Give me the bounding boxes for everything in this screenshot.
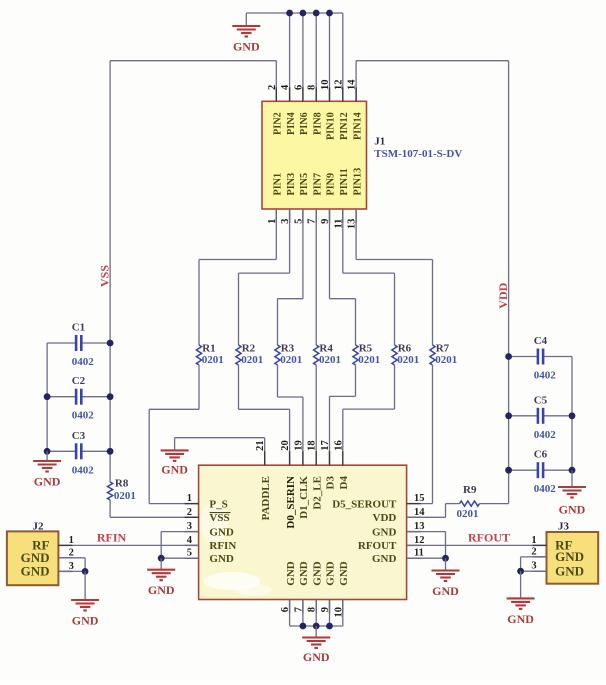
svg-text:J3: J3 (558, 521, 570, 533)
svg-text:20: 20 (280, 440, 291, 451)
svg-text:0402: 0402 (534, 429, 557, 441)
svg-text:GND: GND (209, 526, 234, 538)
svg-text:RFIN: RFIN (97, 531, 127, 545)
svg-text:D4: D4 (338, 476, 350, 490)
svg-text:0201: 0201 (280, 354, 302, 366)
svg-text:C4: C4 (534, 335, 548, 347)
svg-text:R5: R5 (359, 343, 373, 355)
svg-text:0201: 0201 (241, 354, 263, 366)
svg-text:C5: C5 (534, 394, 548, 406)
svg-text:PIN5: PIN5 (299, 173, 310, 196)
svg-text:PADDLE: PADDLE (260, 476, 272, 520)
svg-text:D2_LE: D2_LE (311, 476, 323, 510)
svg-text:GND: GND (285, 561, 297, 586)
svg-text:TSM-107-01-S-DV: TSM-107-01-S-DV (374, 148, 462, 160)
svg-text:GND: GND (148, 583, 175, 597)
svg-text:D0_SERIN: D0_SERIN (285, 476, 297, 529)
svg-text:0402: 0402 (72, 464, 95, 476)
svg-text:17: 17 (320, 440, 331, 451)
svg-text:1: 1 (69, 535, 74, 546)
svg-text:2: 2 (69, 547, 74, 558)
svg-text:GND: GND (311, 561, 323, 586)
svg-text:2: 2 (187, 507, 192, 518)
svg-text:VDD: VDD (373, 512, 397, 524)
svg-text:R4: R4 (319, 343, 333, 355)
svg-text:PIN4: PIN4 (286, 112, 297, 135)
svg-text:PIN1: PIN1 (273, 173, 284, 196)
svg-text:RFOUT: RFOUT (358, 540, 397, 552)
svg-text:3: 3 (531, 561, 536, 572)
svg-text:14: 14 (414, 507, 425, 518)
svg-text:R9: R9 (463, 484, 477, 496)
svg-text:0201: 0201 (358, 354, 380, 366)
svg-text:0402: 0402 (72, 356, 95, 368)
svg-text:PIN11: PIN11 (339, 168, 350, 195)
svg-text:GND: GND (559, 503, 586, 517)
svg-text:GND: GND (555, 549, 584, 564)
svg-text:PIN13: PIN13 (352, 168, 363, 196)
svg-text:GND: GND (325, 561, 337, 586)
svg-text:R2: R2 (242, 343, 256, 355)
svg-text:0201: 0201 (397, 354, 419, 366)
svg-text:13: 13 (414, 521, 425, 532)
svg-text:PIN3: PIN3 (286, 173, 297, 196)
svg-text:0402: 0402 (534, 483, 557, 495)
svg-text:PIN9: PIN9 (326, 173, 337, 196)
svg-text:C2: C2 (72, 375, 86, 387)
svg-text:18: 18 (307, 440, 318, 451)
svg-text:GND: GND (21, 564, 50, 579)
svg-text:R7: R7 (436, 343, 450, 355)
svg-text:GND: GND (161, 462, 188, 476)
svg-text:VDD: VDD (496, 282, 510, 308)
svg-text:R3: R3 (281, 343, 295, 355)
svg-text:R6: R6 (398, 343, 412, 355)
svg-text:D3: D3 (325, 476, 337, 490)
svg-text:1: 1 (531, 535, 536, 546)
svg-text:GND: GND (507, 612, 534, 626)
svg-text:GND: GND (372, 553, 397, 565)
svg-text:0201: 0201 (435, 354, 457, 366)
svg-text:PIN8: PIN8 (312, 112, 323, 135)
svg-text:RFOUT: RFOUT (468, 530, 510, 544)
svg-text:GND: GND (298, 561, 310, 586)
svg-text:PIN10: PIN10 (326, 112, 337, 140)
svg-text:GND: GND (209, 553, 234, 565)
svg-text:J1: J1 (374, 135, 385, 147)
svg-text:GND: GND (34, 475, 61, 489)
svg-text:0201: 0201 (319, 354, 341, 366)
svg-text:5: 5 (187, 548, 192, 559)
svg-text:0201: 0201 (457, 508, 479, 520)
svg-text:15: 15 (414, 493, 425, 504)
svg-text:19: 19 (293, 440, 304, 451)
svg-text:GND: GND (72, 614, 99, 628)
svg-text:R8: R8 (115, 478, 129, 490)
svg-text:12: 12 (414, 535, 425, 546)
svg-text:RFIN: RFIN (209, 540, 236, 552)
svg-text:GND: GND (233, 40, 260, 54)
svg-text:0402: 0402 (72, 410, 95, 422)
svg-text:VSS: VSS (97, 265, 111, 287)
svg-text:C6: C6 (534, 449, 548, 461)
svg-text:PIN2: PIN2 (273, 112, 284, 135)
svg-text:PIN6: PIN6 (299, 112, 310, 135)
svg-text:D5_SEROUT: D5_SEROUT (332, 498, 397, 510)
svg-text:GND: GND (555, 563, 584, 578)
svg-text:PIN7: PIN7 (312, 173, 323, 196)
svg-text:R1: R1 (202, 343, 215, 355)
svg-text:2: 2 (531, 546, 536, 557)
svg-text:GND: GND (432, 584, 459, 598)
svg-text:4: 4 (187, 535, 193, 546)
svg-text:0201: 0201 (202, 354, 224, 366)
svg-text:11: 11 (414, 548, 424, 559)
svg-text:3: 3 (69, 561, 74, 572)
svg-text:D1_CLK: D1_CLK (298, 476, 310, 519)
svg-text:GND: GND (338, 561, 350, 586)
svg-text:C1: C1 (72, 322, 85, 334)
svg-text:C3: C3 (72, 430, 86, 442)
svg-text:P_S: P_S (209, 498, 227, 510)
svg-text:PIN14: PIN14 (352, 112, 363, 140)
svg-text:GND: GND (372, 526, 397, 538)
svg-text:J2: J2 (33, 521, 45, 533)
svg-text:3: 3 (187, 521, 192, 532)
svg-text:PIN12: PIN12 (339, 112, 350, 140)
svg-text:0201: 0201 (114, 490, 136, 502)
svg-text:21: 21 (255, 440, 266, 451)
svg-text:16: 16 (333, 440, 344, 451)
svg-text:GND: GND (303, 650, 330, 664)
svg-text:VSS: VSS (209, 512, 229, 524)
svg-text:1: 1 (187, 493, 192, 504)
svg-text:0402: 0402 (534, 370, 557, 382)
